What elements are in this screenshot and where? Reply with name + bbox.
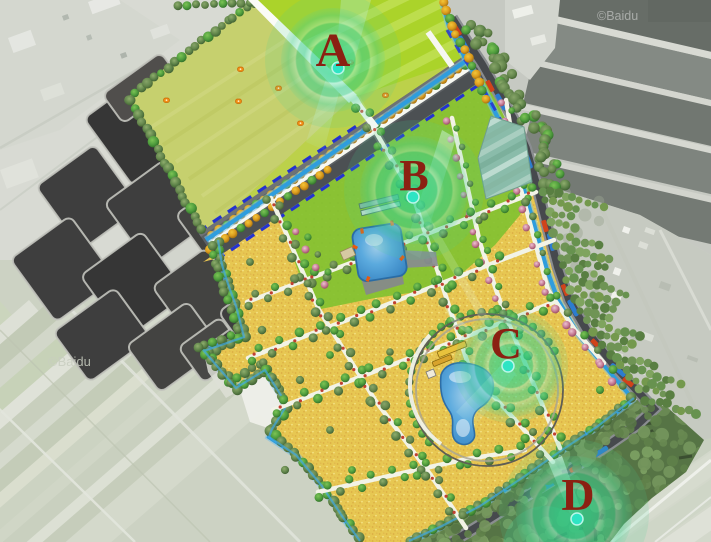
svg-text:D: D [561, 469, 594, 520]
svg-text:C: C [490, 319, 522, 368]
svg-text:A: A [316, 24, 351, 77]
svg-text:©Baidu: ©Baidu [48, 354, 91, 369]
svg-text:©Baidu: ©Baidu [597, 9, 638, 23]
svg-text:B: B [399, 151, 428, 200]
